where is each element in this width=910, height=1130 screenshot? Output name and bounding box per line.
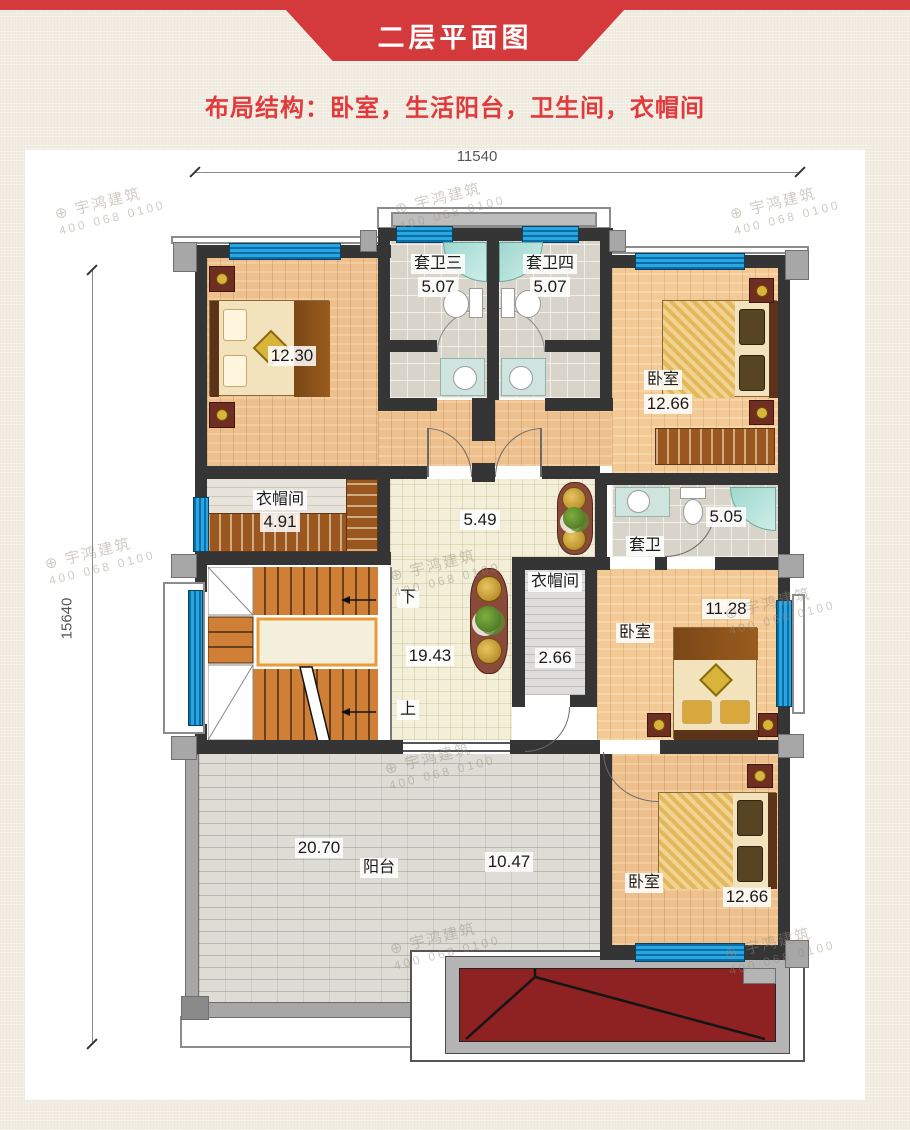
pillow [223, 309, 247, 341]
header-red-bar [0, 0, 910, 10]
cloakroom-shelf [346, 479, 378, 552]
area-text: 19.43 [406, 646, 455, 666]
stairs-up-label: 上 [391, 700, 425, 720]
wall-segment [600, 473, 790, 485]
wall-segment [570, 695, 597, 707]
nightstand [209, 266, 235, 292]
nightstand [209, 402, 235, 428]
wall-segment [542, 466, 600, 479]
room-area-bedroom-bottom-right: 12.66 [709, 887, 785, 907]
area-text: 11.28 [702, 599, 749, 619]
wall-segment [600, 754, 612, 945]
page-title: 二层平面图 [378, 16, 533, 55]
nightstand [758, 713, 778, 737]
corner-pier [778, 734, 804, 758]
bay-window [188, 590, 203, 726]
toilet [680, 487, 706, 499]
bed-headboard [674, 730, 758, 740]
floor-plan-page: 二层平面图 布局结构：卧室，生活阳台，卫生间，衣帽间 11540 15640 [0, 0, 910, 1130]
room-label-balcony: 阳台 [337, 858, 421, 878]
area-text: 4.91 [260, 512, 299, 532]
wall-segment [388, 340, 437, 352]
bed-headboard [769, 301, 778, 398]
room-area-cloakroom-left: 4.91 [247, 512, 313, 532]
label-text: 上 [397, 700, 419, 720]
balcony-area-right: 10.47 [467, 852, 551, 872]
room-label-bath-four: 套卫四 [495, 254, 605, 274]
dimension-line-top [195, 172, 800, 173]
dimension-height-label: 15640 [59, 564, 76, 674]
stairs-down-label: 下 [391, 588, 425, 608]
nightstand [747, 764, 773, 788]
bed [673, 627, 757, 739]
wall-segment [472, 398, 495, 441]
nightstand [647, 713, 671, 737]
room-label-bedroom-bottom-right: 卧室 [607, 873, 681, 893]
decor-bowl [562, 527, 586, 551]
pillow [737, 846, 763, 882]
wall-segment [510, 740, 600, 754]
wall-segment [378, 466, 390, 557]
area-text: 5.07 [530, 277, 569, 297]
room-area-suite-bath: 5.05 [689, 507, 763, 527]
nightstand [749, 400, 774, 425]
wall-segment [512, 695, 525, 707]
wall-segment [195, 466, 427, 479]
roof-surface [459, 968, 776, 1042]
wall-segment [778, 754, 790, 960]
bed-headboard [768, 793, 777, 889]
window [776, 600, 792, 707]
plant [475, 606, 501, 632]
title-ribbon: 二层平面图 [285, 9, 625, 61]
room-label-bedroom-top-right: 卧室 [623, 370, 703, 390]
wall-segment [545, 398, 613, 411]
wardrobe [655, 428, 775, 465]
area-text: 20.70 [295, 838, 344, 858]
room-label-bath-three: 套卫三 [383, 254, 493, 274]
pillow [720, 700, 750, 724]
balcony-rail-left [185, 754, 199, 1016]
pillow [739, 355, 765, 391]
window [193, 497, 209, 552]
dimension-width-label: 11540 [417, 148, 537, 165]
stairs-diagram [208, 567, 378, 740]
room-area-bedroom-top-right: 12.66 [627, 394, 709, 414]
wall-segment [195, 552, 391, 565]
corner-pier [171, 736, 197, 760]
label-text: 衣帽间 [253, 490, 307, 510]
bed-headboard [210, 301, 219, 397]
label-text: 下 [397, 588, 419, 608]
corner-pier [778, 554, 804, 578]
wall-segment [195, 245, 207, 468]
sink [627, 490, 650, 513]
decor-bowl [476, 576, 502, 602]
area-text: 10.47 [485, 852, 534, 872]
area-text: 5.05 [706, 507, 745, 527]
plan-canvas: 11540 15640 [25, 150, 865, 1100]
sink [453, 366, 477, 390]
plant [563, 507, 585, 529]
bed-decor-diamond [699, 663, 733, 697]
corner-pier [360, 230, 377, 252]
roof-ridge-lines [460, 969, 775, 1041]
label-text: 卧室 [625, 873, 663, 893]
decor-bowl [476, 638, 502, 664]
room-label-cloakroom-middle: 衣帽间 [517, 572, 593, 592]
corner-pier [171, 554, 197, 578]
corner-pier [173, 242, 197, 272]
window-frame [792, 594, 805, 714]
label-text: 衣帽间 [528, 572, 582, 592]
room-area-bath-four: 5.07 [495, 277, 605, 297]
bed-duvet [674, 628, 758, 660]
room-label-bedroom-middle-right: 卧室 [595, 623, 675, 643]
label-text: 阳台 [360, 858, 398, 878]
balcony-area-left: 20.70 [277, 838, 361, 858]
wall-segment [472, 463, 495, 482]
layout-subtitle: 布局结构：卧室，生活阳台，卫生间，衣帽间 [0, 88, 910, 123]
nightstand [749, 278, 774, 303]
window [635, 943, 745, 962]
wall-segment [378, 398, 437, 411]
area-text: 5.49 [460, 510, 499, 530]
sink [509, 366, 533, 390]
pillow [223, 355, 247, 387]
window [396, 226, 453, 243]
area-text: 12.66 [644, 394, 693, 414]
label-text: 套卫四 [523, 254, 577, 274]
corner-pier [785, 250, 809, 280]
label-text: 套卫三 [411, 254, 465, 274]
stairs-area: 19.43 [387, 646, 473, 666]
window [522, 226, 579, 243]
wall-segment [195, 740, 403, 754]
corner-pier [609, 230, 626, 252]
area-text: 12.66 [723, 887, 772, 907]
dimension-line-left [92, 270, 93, 1045]
balcony-sliding-door [403, 742, 510, 752]
room-area-bedroom-top-left: 12.30 [253, 346, 331, 366]
label-text: 卧室 [644, 370, 682, 390]
room-area-bath-three: 5.07 [383, 277, 493, 297]
room-area-cloakroom-middle: 2.66 [521, 648, 589, 668]
pillow [737, 800, 763, 836]
area-text: 5.07 [418, 277, 457, 297]
label-text: 卧室 [616, 623, 654, 643]
area-text: 2.66 [535, 648, 574, 668]
room-label-suite-bath: 套卫 [607, 536, 683, 556]
room-label-cloakroom-left: 衣帽间 [237, 490, 323, 510]
room-area-bedroom-middle-right: 11.28 [683, 599, 769, 619]
wall-segment [655, 557, 667, 570]
room-area-hallway: 5.49 [443, 510, 517, 530]
roof-ledge-inner [391, 212, 597, 227]
corner-pier [785, 940, 809, 968]
wall-segment [595, 479, 607, 557]
balcony-rail-post [181, 996, 209, 1020]
area-text: 12.30 [268, 346, 317, 366]
pillow [682, 700, 712, 724]
wall-segment [545, 340, 600, 352]
pillow [739, 309, 765, 345]
window [635, 253, 745, 270]
label-text: 套卫 [626, 536, 664, 556]
window [229, 243, 341, 260]
roof-notch [743, 968, 776, 984]
wall-segment [660, 740, 790, 754]
